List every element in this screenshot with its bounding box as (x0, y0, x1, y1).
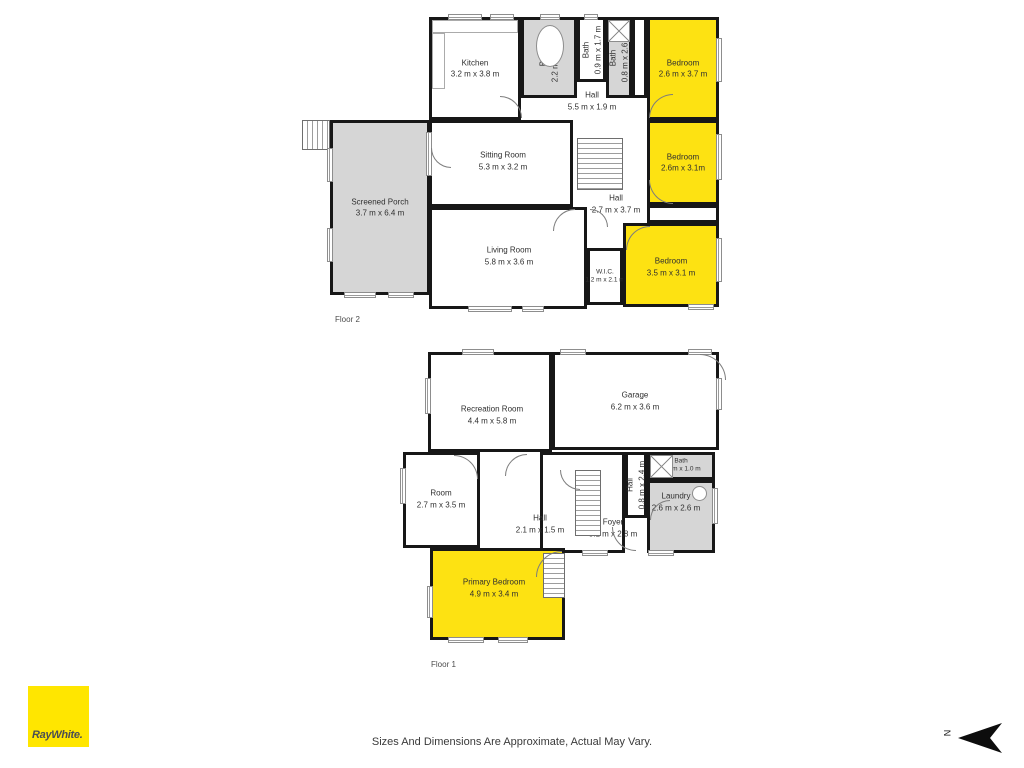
window (582, 550, 608, 556)
north-label: N (942, 730, 952, 737)
window (716, 378, 722, 410)
window (327, 228, 333, 262)
tub-fixture (536, 25, 564, 67)
window (716, 134, 722, 180)
north-arrow-icon (956, 720, 1004, 756)
room-w-i-c (587, 248, 623, 305)
stairs (577, 138, 623, 190)
window (462, 349, 494, 355)
counter-fixture (432, 20, 518, 33)
room-hall (480, 505, 560, 548)
room-recreation-room (428, 352, 552, 452)
floor-label-floor-1: Floor 1 (431, 660, 456, 669)
window (427, 586, 433, 618)
window (584, 14, 598, 20)
window (540, 14, 560, 20)
room-hall (625, 452, 647, 518)
room-space (632, 17, 647, 98)
window (468, 306, 512, 312)
window (344, 292, 376, 298)
room-garage (552, 352, 719, 450)
window (448, 637, 484, 643)
door-arc (700, 354, 726, 380)
window (712, 488, 718, 524)
window (327, 148, 333, 182)
window (425, 378, 431, 414)
door-arc (505, 454, 527, 476)
counter-fixture (432, 33, 445, 89)
window (498, 637, 528, 643)
room-space (647, 205, 719, 223)
floorplan-canvas: Screened Porch3.7 m x 6.4 mKitchen3.2 m … (0, 0, 1024, 768)
floor-label-floor-2: Floor 2 (335, 315, 360, 324)
window (716, 38, 722, 82)
disclaimer-text: Sizes And Dimensions Are Approximate, Ac… (0, 736, 1024, 748)
xbox-fixture (608, 20, 630, 42)
xbox-fixture (650, 455, 673, 478)
north-indicator: N (938, 716, 1008, 760)
window (688, 304, 714, 310)
window (560, 349, 586, 355)
washer-fixture (692, 486, 707, 501)
window (522, 306, 544, 312)
window (400, 468, 406, 504)
window (388, 292, 414, 298)
room-screened-porch (330, 120, 430, 295)
room-bath (577, 17, 606, 82)
window (648, 550, 674, 556)
stairs (302, 120, 330, 150)
window (716, 238, 722, 282)
